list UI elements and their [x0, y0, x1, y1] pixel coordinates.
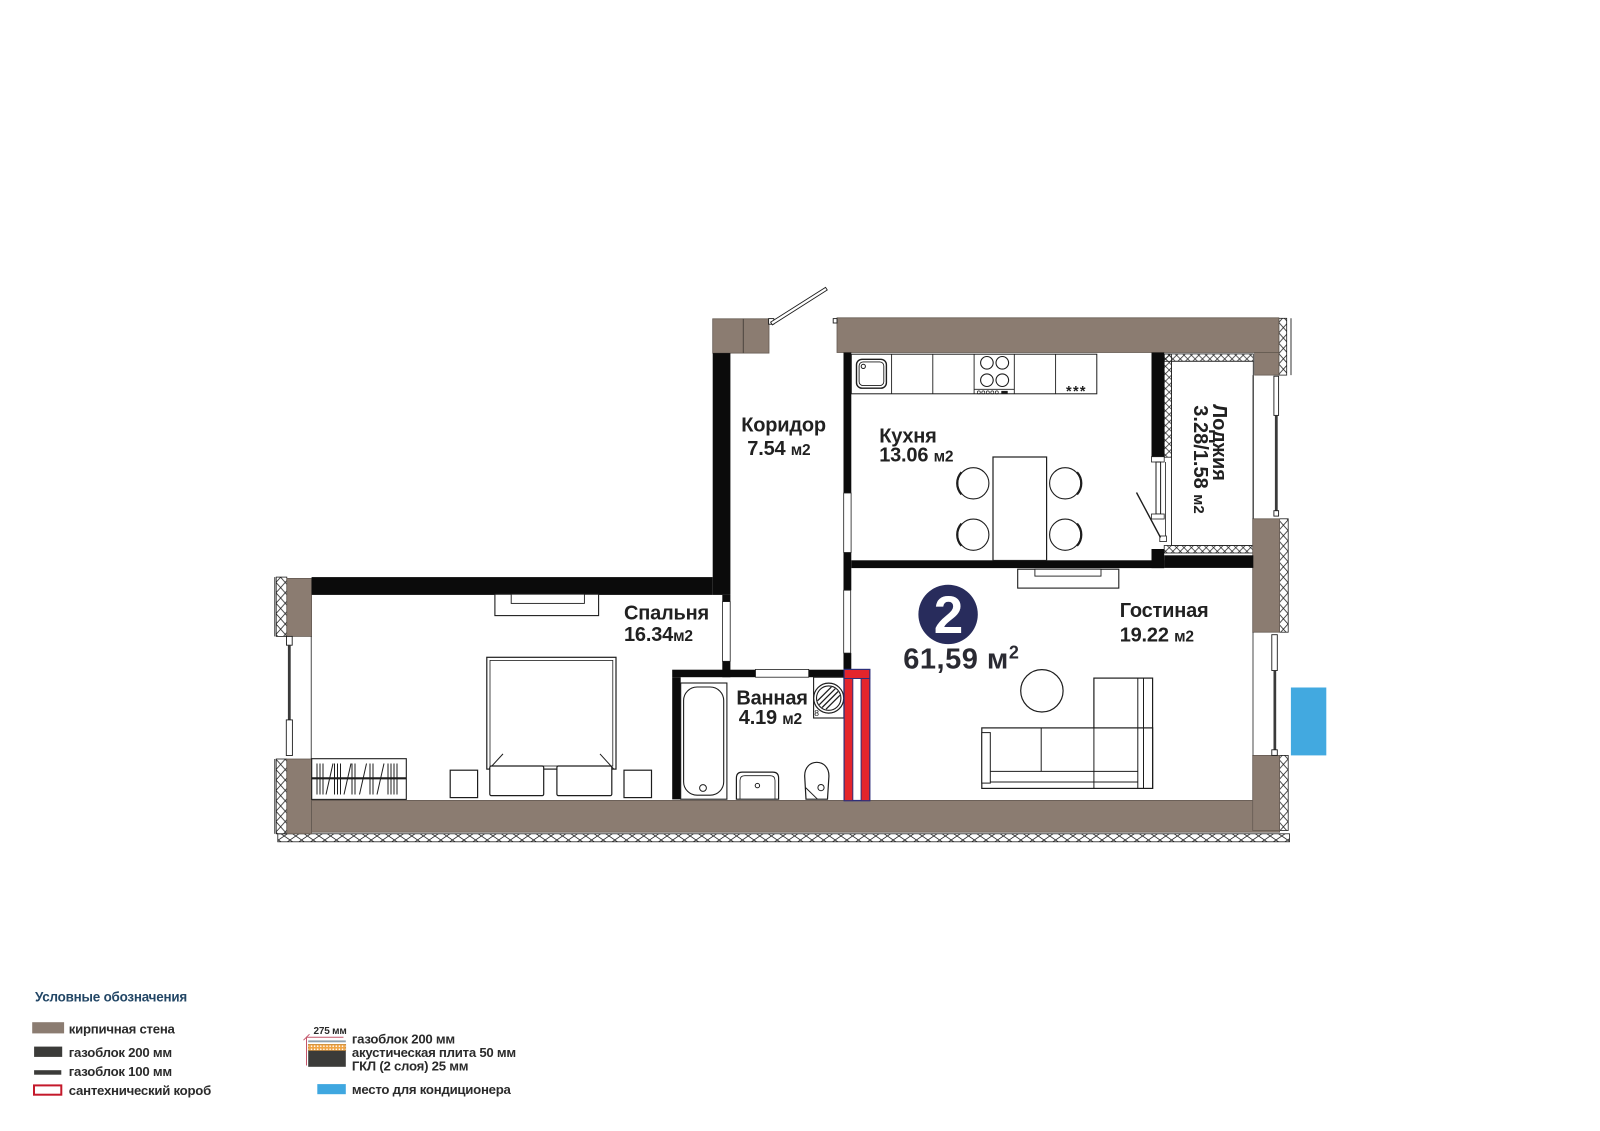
svg-text:Спальня: Спальня [624, 602, 709, 624]
svg-text:16.34м2: 16.34м2 [624, 624, 693, 646]
svg-text:19.22 м2: 19.22 м2 [1120, 624, 1194, 646]
svg-text:Коридор: Коридор [741, 415, 826, 437]
svg-text:Условные обозначения: Условные обозначения [35, 990, 187, 1005]
svg-text:кирпичная стена: кирпичная стена [69, 1022, 176, 1037]
svg-text:4.19 м2: 4.19 м2 [739, 707, 802, 729]
svg-text:8: 8 [814, 708, 819, 718]
svg-text:газоблок 100 мм: газоблок 100 мм [69, 1064, 172, 1079]
svg-text:ГКЛ (2 слоя) 25 мм: ГКЛ (2 слоя) 25 мм [352, 1059, 468, 1074]
svg-text:13.06 м2: 13.06 м2 [879, 444, 953, 466]
svg-text:2: 2 [934, 586, 963, 645]
svg-text:газоблок 200 мм: газоблок 200 мм [69, 1045, 172, 1060]
svg-text:Ванная: Ванная [736, 687, 807, 709]
svg-text:7.54 м2: 7.54 м2 [747, 438, 810, 460]
svg-text:3.28/1.58 м2: 3.28/1.58 м2 [1189, 405, 1211, 513]
svg-text:275 мм: 275 мм [314, 1026, 347, 1037]
svg-text:***: *** [1066, 384, 1087, 400]
svg-text:сантехнический короб: сантехнический короб [69, 1083, 211, 1098]
svg-text:Гостиная: Гостиная [1120, 600, 1209, 622]
svg-text:место для кондиционера: место для кондиционера [352, 1082, 512, 1097]
svg-text:61,59 м2: 61,59 м2 [903, 643, 1019, 676]
